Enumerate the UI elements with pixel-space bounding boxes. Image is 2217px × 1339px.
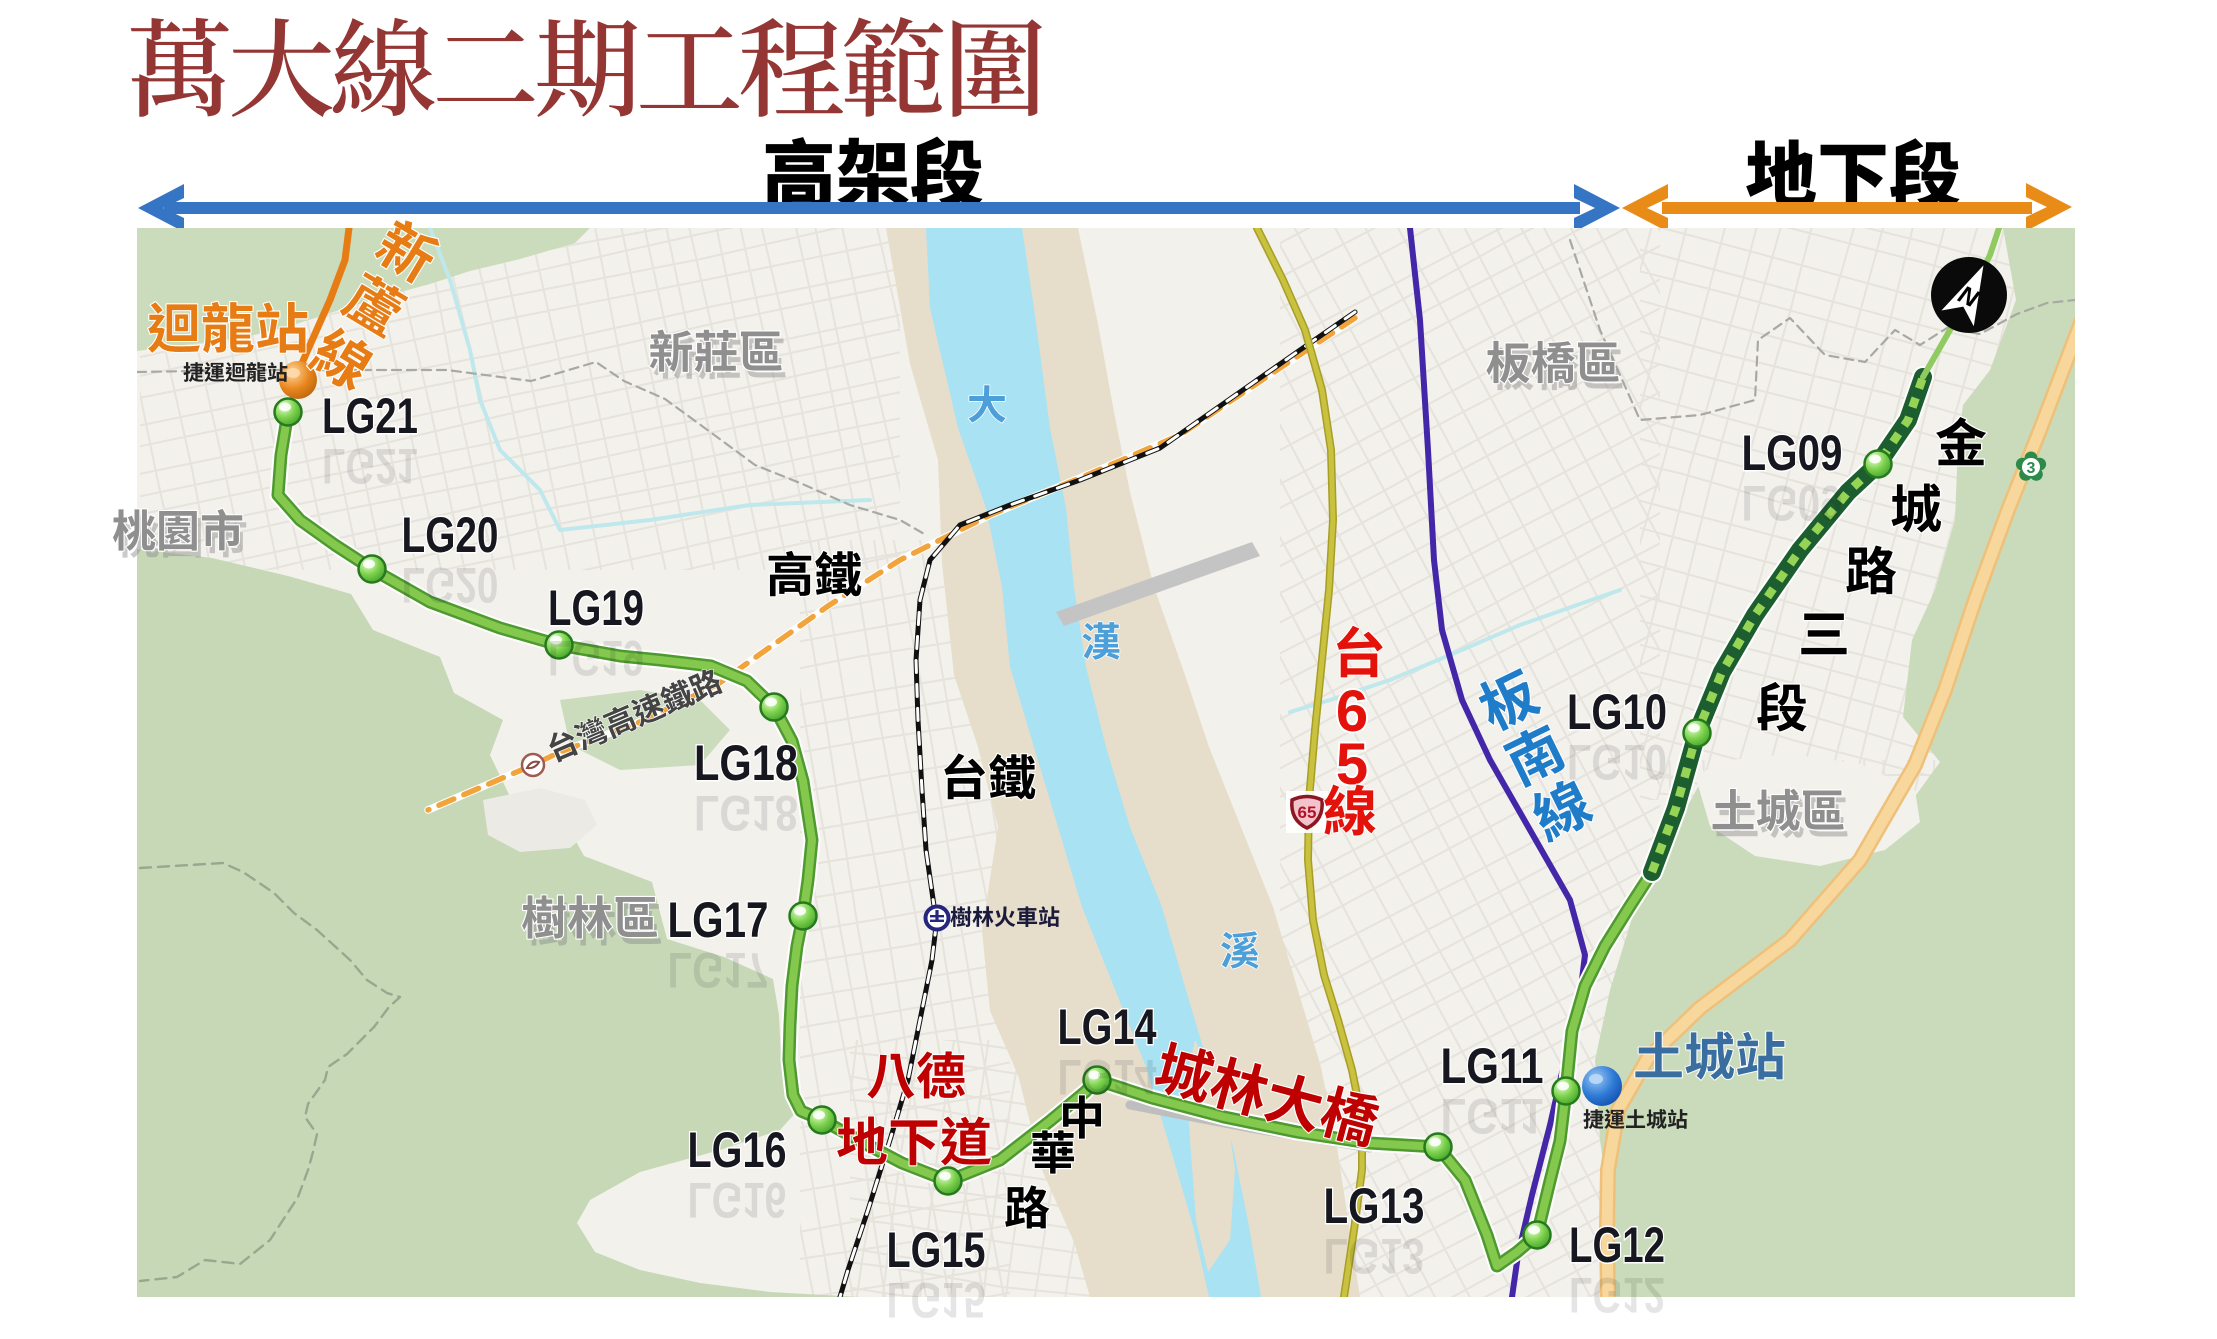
svg-text:LG13: LG13 <box>1324 1228 1425 1284</box>
svg-text:LG09: LG09 <box>1742 475 1843 531</box>
svg-text:LG19: LG19 <box>548 580 644 636</box>
svg-text:LG16: LG16 <box>688 1172 787 1228</box>
svg-text:LG17: LG17 <box>668 942 769 998</box>
svg-text:LG15: LG15 <box>887 1272 986 1328</box>
svg-text:LG15: LG15 <box>887 1222 986 1278</box>
svg-text:LG13: LG13 <box>1324 1178 1425 1234</box>
svg-text:LG10: LG10 <box>1567 684 1667 740</box>
svg-text:LG17: LG17 <box>668 892 769 948</box>
svg-text:LG20: LG20 <box>402 557 499 613</box>
svg-text:LG12: LG12 <box>1569 1267 1665 1323</box>
svg-text:LG20: LG20 <box>402 507 499 563</box>
svg-text:LG11: LG11 <box>1441 1038 1544 1094</box>
svg-text:LG21: LG21 <box>322 438 418 494</box>
svg-text:LG16: LG16 <box>688 1122 787 1178</box>
svg-text:LG14: LG14 <box>1058 1049 1157 1105</box>
svg-text:LG21: LG21 <box>322 388 418 444</box>
svg-text:3: 3 <box>2027 460 2036 477</box>
svg-text:LG11: LG11 <box>1441 1088 1544 1144</box>
svg-text:LG18: LG18 <box>694 785 798 841</box>
svg-text:65: 65 <box>1298 803 1317 822</box>
svg-text:LG19: LG19 <box>548 630 644 686</box>
svg-text:LG18: LG18 <box>694 735 798 791</box>
svg-text:LG12: LG12 <box>1569 1217 1665 1273</box>
svg-text:LG10: LG10 <box>1567 734 1667 790</box>
svg-text:LG14: LG14 <box>1058 999 1157 1055</box>
svg-text:LG09: LG09 <box>1742 425 1843 481</box>
